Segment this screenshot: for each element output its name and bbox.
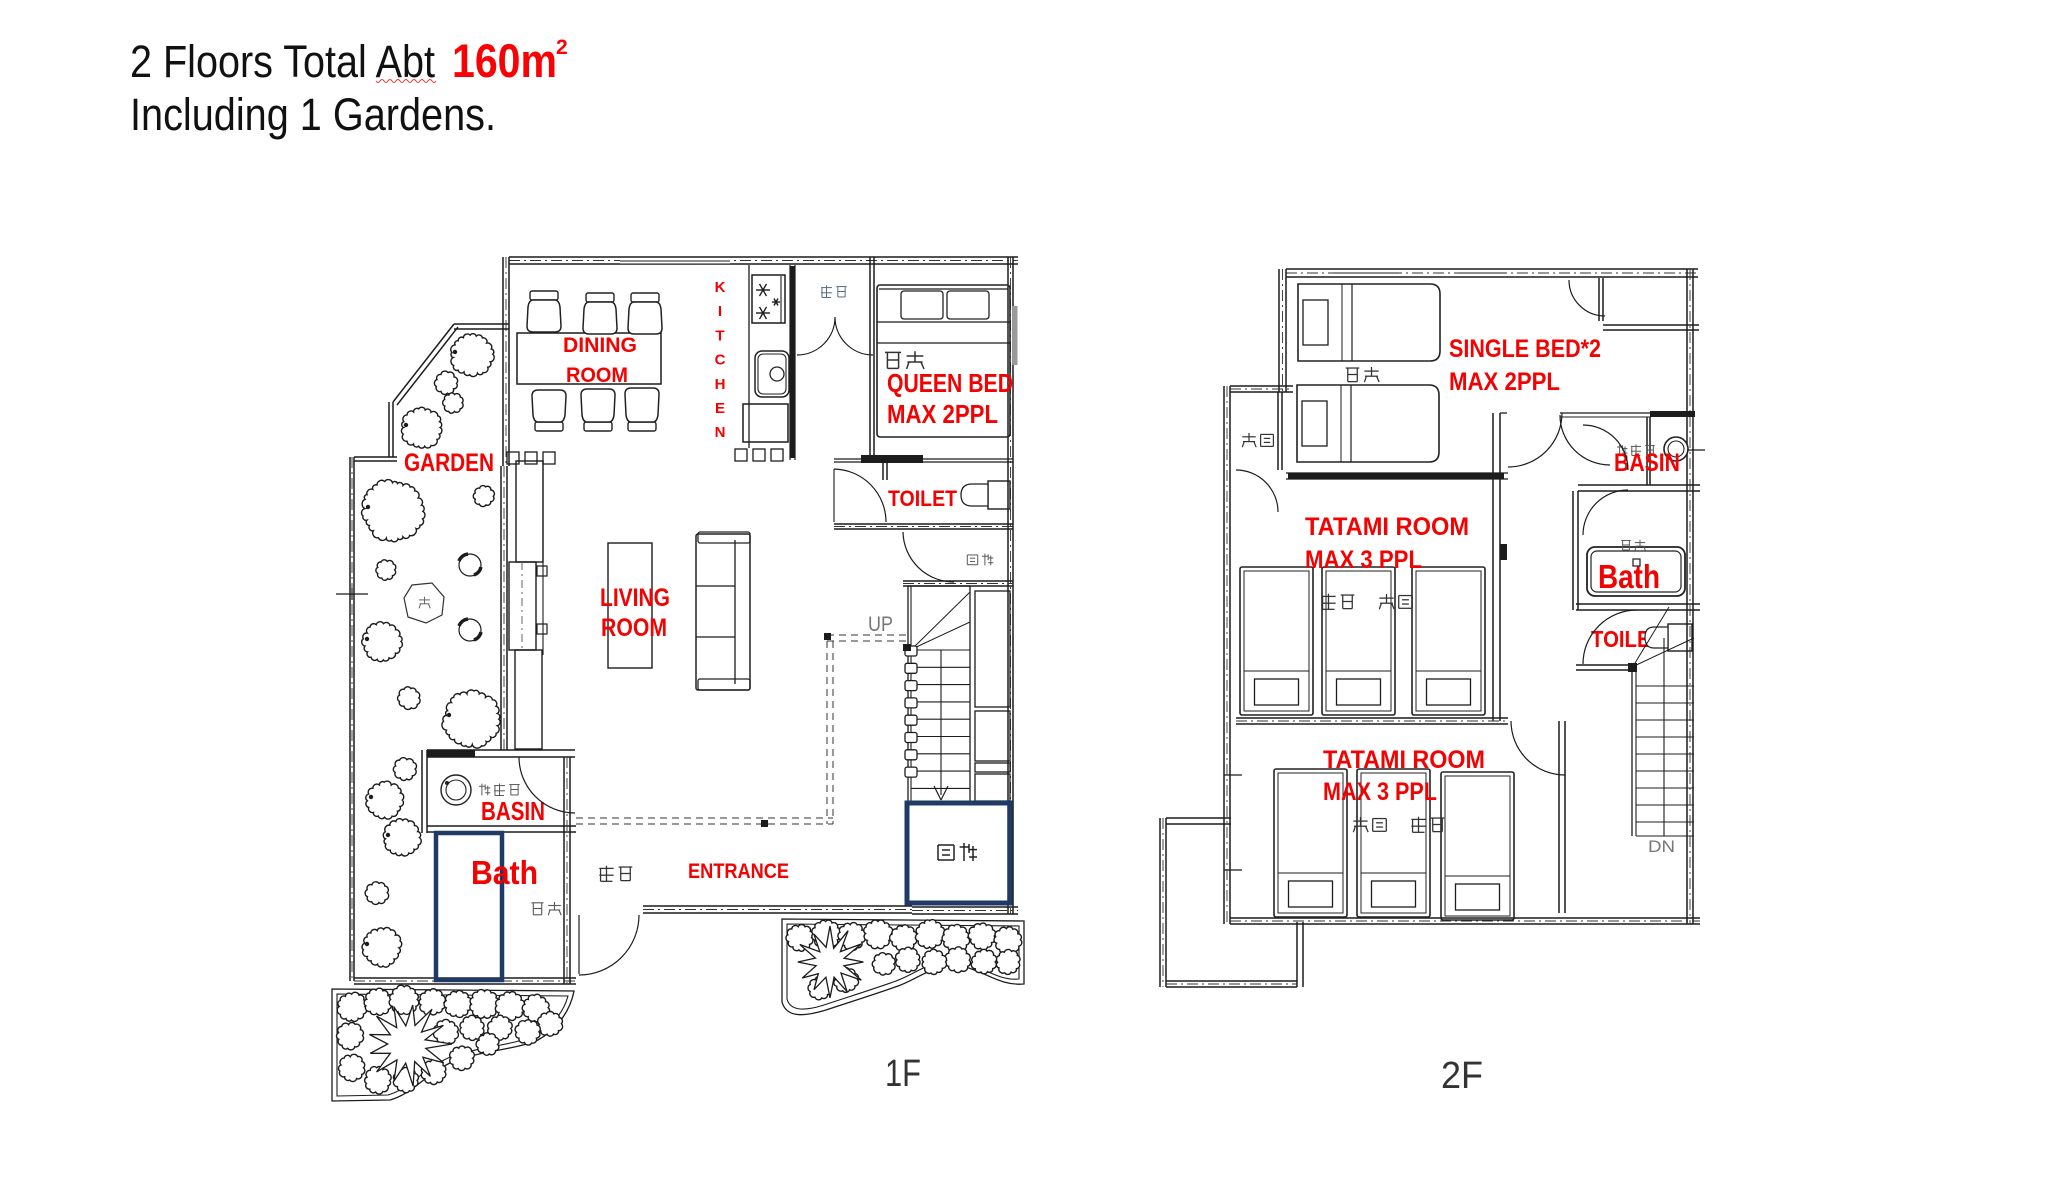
svg-text:MAX 3 PPL: MAX 3 PPL (1323, 778, 1437, 806)
svg-text:Bath: Bath (1598, 558, 1660, 595)
svg-text:TATAMI ROOM: TATAMI ROOM (1305, 513, 1469, 541)
svg-text:160m: 160m (452, 34, 557, 87)
svg-text:BASIN: BASIN (1614, 449, 1680, 477)
svg-text:BASIN: BASIN (481, 796, 545, 826)
svg-text:ROOM: ROOM (601, 614, 667, 642)
svg-text:C: C (715, 352, 726, 369)
svg-text:MAX 2PPL: MAX 2PPL (887, 399, 998, 429)
svg-text:2F: 2F (1441, 1055, 1483, 1097)
svg-text:SINGLE BED*2: SINGLE BED*2 (1449, 335, 1601, 363)
svg-text:2: 2 (556, 36, 568, 59)
svg-text:GARDEN: GARDEN (404, 449, 494, 477)
svg-text:QUEEN BED: QUEEN BED (887, 368, 1013, 398)
svg-text:ENTRANCE: ENTRANCE (688, 860, 789, 883)
svg-text:TATAMI ROOM: TATAMI ROOM (1323, 746, 1485, 774)
svg-text:1F: 1F (885, 1053, 921, 1095)
svg-text:DINING: DINING (563, 334, 637, 357)
svg-text:H: H (715, 376, 726, 393)
svg-text:DN: DN (1648, 837, 1675, 856)
svg-text:K: K (715, 279, 726, 296)
svg-text:I: I (718, 303, 722, 320)
svg-text:Including 1 Gardens.: Including 1 Gardens. (130, 89, 496, 140)
svg-text:TOILET: TOILET (888, 486, 957, 511)
svg-text:MAX 3 PPL: MAX 3 PPL (1305, 546, 1422, 574)
svg-text:Bath: Bath (471, 854, 538, 891)
svg-text:N: N (715, 424, 726, 441)
svg-text:T: T (715, 327, 724, 344)
svg-text:UP: UP (868, 613, 893, 636)
svg-text:E: E (715, 400, 725, 417)
svg-text:MAX 2PPL: MAX 2PPL (1449, 368, 1560, 396)
svg-text:LIVING: LIVING (600, 584, 670, 612)
svg-text:ROOM: ROOM (566, 364, 628, 387)
